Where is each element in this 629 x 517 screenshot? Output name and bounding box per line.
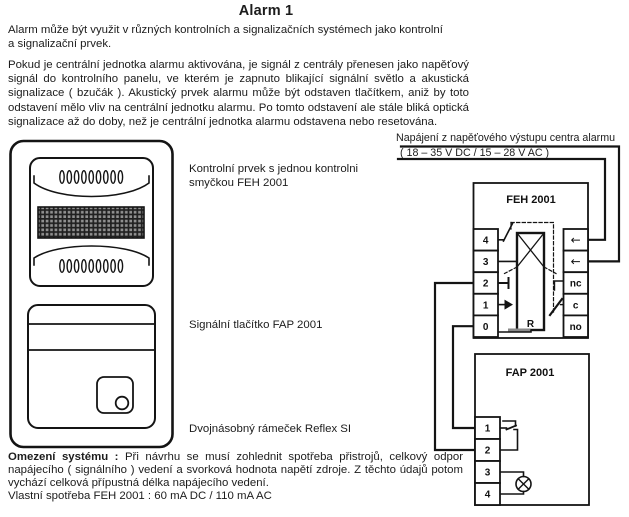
intro-line: a signalizační prvek. [8, 37, 468, 51]
contact-nc: nc [570, 279, 582, 290]
indicator-grille [38, 207, 144, 238]
top-vent-slots [60, 171, 123, 184]
footer-line: vychází celková přípustná délka napájecí… [8, 477, 463, 490]
fap-unit: FAP 2001 1 2 [475, 354, 589, 505]
intro-paragraph: Alarm může být využit v různých kontroln… [8, 23, 468, 52]
feh-front-panel [30, 158, 153, 286]
intro-line: Alarm může být využit v různých kontroln… [8, 23, 468, 37]
power-input-arrow-icon: ← [571, 255, 581, 269]
power-input-arrow-icon: ← [571, 233, 581, 247]
button-lens [116, 397, 129, 410]
label-double-frame: Dvojnásobný rámeček Reflex SI [189, 422, 351, 436]
reflex-frame-outline [11, 141, 173, 447]
feh-left-terminals: 4 3 2 1 0 [474, 229, 499, 337]
body-line: signál do kontrolního panelu, ve kterém … [8, 72, 469, 86]
relay-label: R [527, 319, 535, 330]
page-title: Alarm 1 [0, 3, 532, 19]
body-line: Pokud je centrální jednotka alarmu aktiv… [8, 58, 469, 72]
footer-line: napájecího ( signálního ) vedení a svork… [8, 464, 463, 477]
footer-consumption: Vlastní spotřeba FEH 2001 : 60 mA DC / 1… [8, 490, 463, 503]
fap-terminal-3: 3 [485, 468, 491, 479]
body-line: signalizace ( bzučák ). Akustický prvek … [8, 86, 469, 100]
fap-title: FAP 2001 [506, 367, 555, 379]
body-line: signalizace až do doby, než je centrální… [8, 115, 469, 129]
system-limits-paragraph: Omezení systému : Při návrhu se musí zoh… [8, 451, 463, 504]
contact-c: c [573, 300, 579, 311]
loop-wires [435, 283, 475, 450]
fap-terminal-2: 2 [485, 446, 491, 457]
wire-feh2-fap2 [435, 283, 475, 450]
footer-lead: Omezení systému : [8, 451, 118, 463]
device-front-drawing [0, 130, 180, 460]
feh-right-terminals: ← ← nc c no [564, 229, 589, 337]
label-control-element: Kontrolní prvek s jednou kontrolni smyčk… [189, 162, 358, 190]
upper-curve [34, 176, 149, 197]
feh-terminal-1: 1 [483, 300, 489, 311]
fap-front-panel [28, 305, 155, 428]
fap-terminal-4: 4 [485, 490, 491, 501]
wire-feh0-fap1 [453, 326, 475, 428]
contact-no: no [570, 322, 582, 333]
label-signal-button: Signální tlačítko FAP 2001 [189, 318, 322, 332]
feh-terminal-0: 0 [483, 322, 489, 333]
bottom-vent-slots [60, 260, 123, 273]
feh-unit: FEH 2001 R [474, 183, 589, 338]
feh-terminal-2: 2 [483, 279, 489, 290]
footer-line: Omezení systému : Při návrhu se musí zoh… [8, 451, 463, 464]
body-line: odstavení mělo vliv na centrální jednotk… [8, 101, 469, 115]
feh-terminal-3: 3 [483, 257, 489, 268]
fap-terminals: 1 2 3 4 [475, 417, 500, 505]
body-paragraph: Pokud je centrální jednotka alarmu aktiv… [8, 58, 469, 130]
fap-terminal-1: 1 [485, 424, 491, 435]
manual-page: Alarm 1 Alarm může být využit v různých … [0, 0, 629, 517]
feh-title: FEH 2001 [506, 194, 556, 206]
signal-button [97, 377, 133, 413]
lower-curve [34, 246, 149, 265]
feh-terminal-4: 4 [483, 236, 489, 247]
